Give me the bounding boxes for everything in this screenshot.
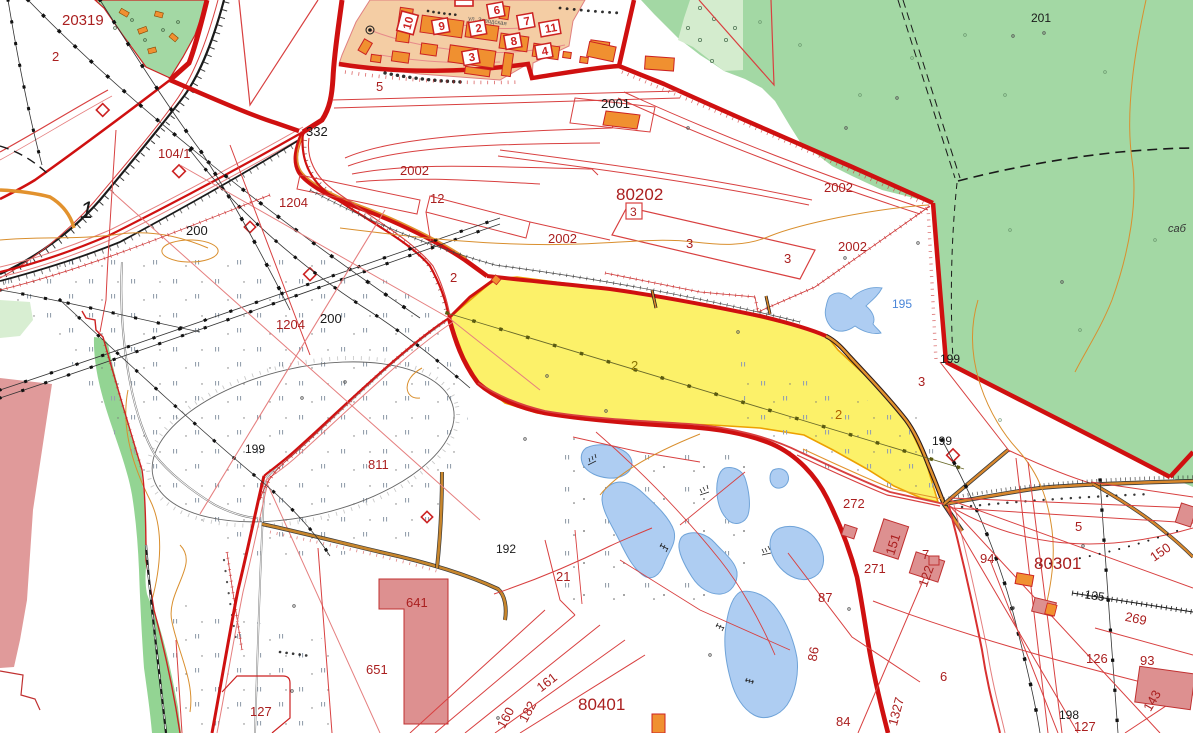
svg-text:641: 641 <box>406 595 428 610</box>
svg-text:104/1: 104/1 <box>158 146 191 161</box>
svg-text:94: 94 <box>980 551 994 566</box>
svg-text:1204: 1204 <box>276 317 305 332</box>
svg-text:84: 84 <box>836 714 850 729</box>
svg-text:86: 86 <box>805 646 822 663</box>
svg-text:200: 200 <box>320 311 342 326</box>
svg-text:21: 21 <box>556 569 570 584</box>
svg-text:6: 6 <box>940 669 947 684</box>
svg-text:195: 195 <box>892 297 912 311</box>
svg-text:271: 271 <box>864 561 886 576</box>
svg-text:87: 87 <box>818 590 832 605</box>
svg-text:3: 3 <box>784 251 791 266</box>
svg-text:80301: 80301 <box>1034 554 1081 573</box>
svg-text:2: 2 <box>52 49 59 64</box>
svg-text:3: 3 <box>686 236 693 251</box>
svg-text:199: 199 <box>932 434 952 448</box>
svg-text:2002: 2002 <box>838 239 867 254</box>
svg-text:2: 2 <box>835 407 842 422</box>
svg-text:7: 7 <box>922 547 929 562</box>
svg-text:201: 201 <box>1031 11 1051 25</box>
svg-text:1204: 1204 <box>279 195 308 210</box>
svg-text:811: 811 <box>368 457 389 472</box>
svg-text:саб: саб <box>1168 223 1187 235</box>
svg-text:3: 3 <box>630 205 637 219</box>
svg-text:651: 651 <box>366 662 388 677</box>
svg-text:1: 1 <box>80 197 93 224</box>
svg-text:5: 5 <box>376 79 383 94</box>
svg-text:20319: 20319 <box>62 12 104 29</box>
svg-text:3: 3 <box>918 374 925 389</box>
svg-text:135: 135 <box>1084 587 1106 604</box>
svg-text:272: 272 <box>843 496 865 511</box>
svg-text:2: 2 <box>450 270 457 285</box>
svg-text:80202: 80202 <box>616 185 663 204</box>
svg-text:12: 12 <box>430 191 444 206</box>
svg-text:127: 127 <box>250 704 272 719</box>
svg-text:126: 126 <box>1086 651 1108 666</box>
svg-text:2002: 2002 <box>400 163 429 178</box>
svg-text:2002: 2002 <box>824 180 853 195</box>
svg-text:192: 192 <box>496 542 516 556</box>
svg-text:200: 200 <box>186 223 208 238</box>
svg-text:93: 93 <box>1140 653 1154 668</box>
svg-text:332: 332 <box>306 124 328 139</box>
svg-text:199: 199 <box>940 352 960 366</box>
svg-text:2: 2 <box>631 358 638 373</box>
svg-text:2002: 2002 <box>548 231 577 246</box>
svg-text:5: 5 <box>1075 519 1082 534</box>
svg-text:127: 127 <box>1074 719 1096 733</box>
svg-text:2001: 2001 <box>601 96 630 111</box>
svg-text:199: 199 <box>245 442 265 456</box>
svg-text:80401: 80401 <box>578 695 625 714</box>
